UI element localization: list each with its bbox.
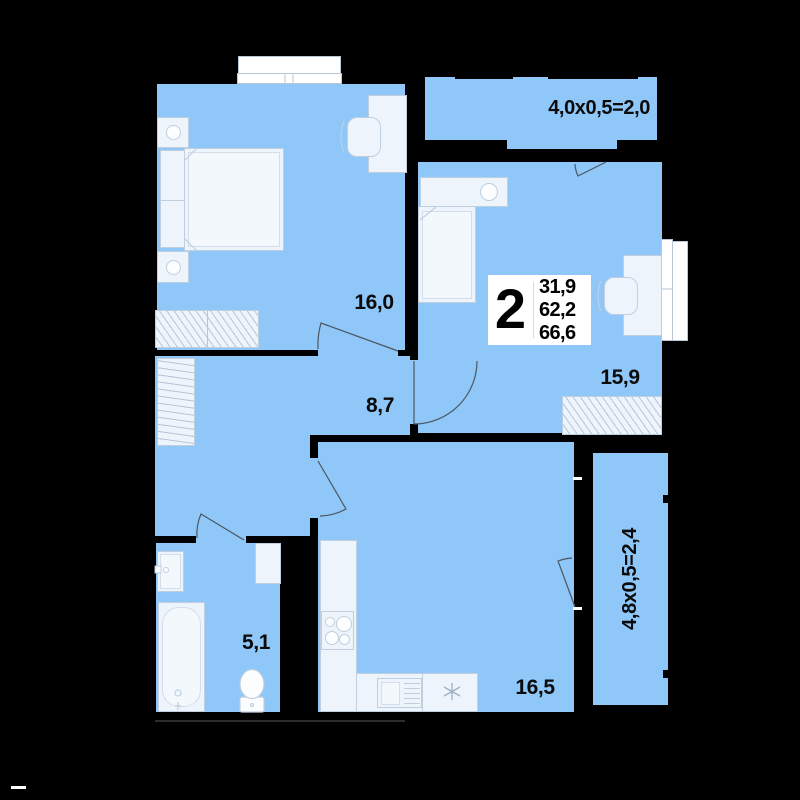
room-label-bedroom2: 15,9 — [585, 366, 655, 390]
burner — [325, 617, 335, 627]
bedroom-window-sill — [237, 73, 342, 84]
sink-basin — [160, 554, 181, 589]
watermark-dash — [11, 786, 26, 789]
floor-plan: 2 31,9 62,2 66,6 16,0 8,7 15,9 16,5 5,1 … — [0, 0, 800, 800]
room-label-kitchen-living: 16,5 — [500, 676, 570, 700]
bed-headboard-icon — [160, 150, 185, 248]
room-hallway-lower — [155, 435, 310, 536]
door-opening-living — [306, 458, 319, 518]
sink-icon — [157, 551, 184, 592]
closet-icon — [157, 358, 195, 446]
bed-mattress — [422, 211, 472, 299]
wardrobe-icon — [155, 310, 259, 348]
stove-icon — [321, 611, 354, 650]
pillow-divider — [161, 200, 184, 201]
area-main: 62,2 — [539, 299, 576, 322]
nightstand-icon — [157, 251, 189, 283]
rooms-count: 2 — [488, 275, 533, 345]
balcony-top-doorsill — [507, 140, 617, 149]
chair-icon — [604, 277, 638, 315]
room-label-bedroom: 16,0 — [338, 291, 410, 315]
lamp-icon — [480, 183, 498, 201]
room-label-hallway: 8,7 — [350, 394, 410, 418]
single-bed-icon — [418, 206, 476, 303]
area-living: 31,9 — [539, 276, 576, 299]
balcony-top-dimensions: 4,0x0,5=2,0 — [548, 97, 650, 120]
nightstand-icon — [157, 117, 189, 148]
area-total: 66,6 — [539, 322, 576, 345]
counter-divider — [422, 674, 423, 711]
door-opening-bedroom — [318, 345, 398, 357]
dishwasher-door — [381, 682, 400, 705]
door-opening-bathroom — [196, 532, 246, 544]
lamp-icon — [166, 260, 181, 275]
dishwasher-icon — [377, 678, 422, 708]
chair-icon — [347, 117, 381, 157]
lamp-icon — [166, 125, 181, 140]
unit-info-box: 2 31,9 62,2 66,6 — [488, 275, 591, 345]
duct-shaft — [255, 543, 281, 584]
bedroom-window — [238, 56, 341, 74]
building-outline-line — [155, 720, 405, 722]
burner — [325, 631, 339, 645]
window-notch — [573, 607, 582, 610]
bedroom2-window-outer — [672, 241, 688, 341]
bathtub-icon — [158, 602, 205, 712]
burner — [339, 634, 350, 645]
burner — [336, 616, 352, 632]
balcony-top-label: 4,0x0,5=2,0 — [425, 77, 657, 140]
bathtub-basin — [162, 607, 201, 707]
headboard-shelf-icon — [420, 177, 508, 207]
wardrobe-divider — [207, 311, 208, 347]
room-label-bathroom: 5,1 — [226, 631, 286, 655]
balcony-right-dimensions: 4,8x0,5=2,4 — [619, 528, 642, 630]
window-notch — [573, 477, 582, 480]
balcony-right-label: 4,8x0,5=2,4 — [593, 453, 668, 705]
unit-areas: 31,9 62,2 66,6 — [534, 275, 576, 345]
bed-mattress — [188, 152, 280, 247]
double-bed-icon — [184, 148, 284, 251]
dishwasher-vents — [404, 683, 420, 704]
wardrobe-icon — [562, 396, 662, 435]
